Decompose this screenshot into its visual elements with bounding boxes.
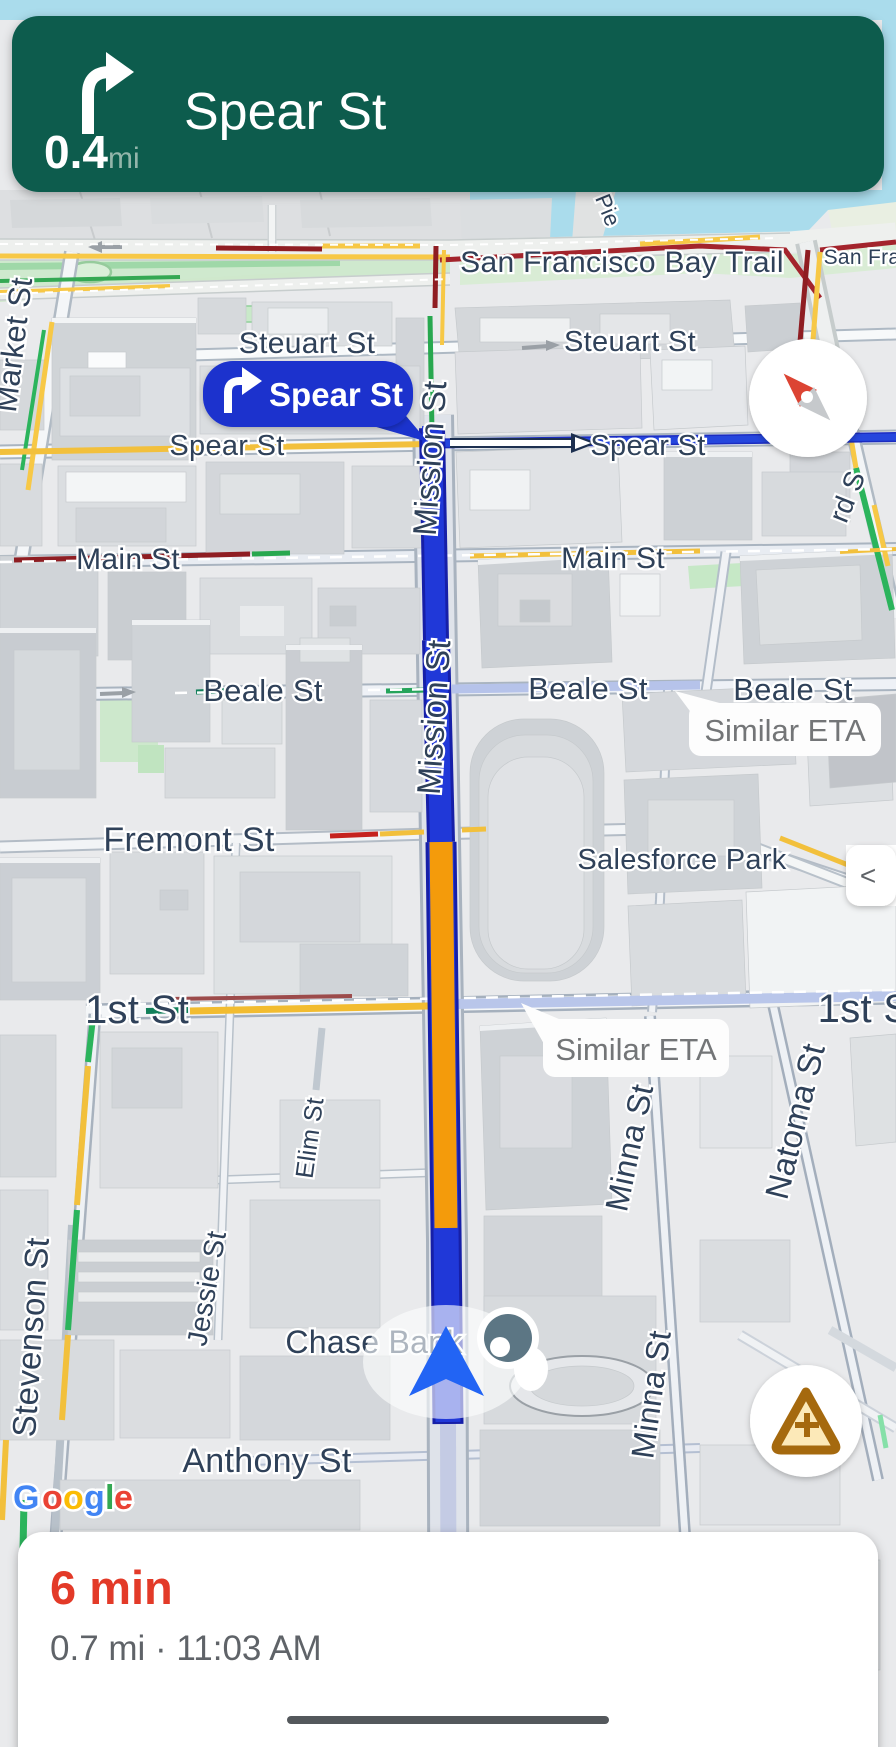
svg-text:Spear St: Spear St [269, 376, 403, 413]
svg-text:Spear St: Spear St [169, 430, 284, 462]
svg-text:Fremont St: Fremont St [103, 821, 274, 859]
svg-text:o: o [42, 1479, 63, 1517]
svg-text:e: e [114, 1479, 133, 1517]
svg-text:Similar ETA: Similar ETA [704, 713, 866, 748]
svg-text:Similar ETA: Similar ETA [555, 1032, 717, 1067]
svg-text:Steuart St: Steuart St [239, 327, 376, 360]
svg-text:San Fran: San Fran [824, 246, 896, 269]
svg-text:Beale St: Beale St [733, 672, 853, 707]
svg-text:1st S: 1st S [818, 987, 896, 1031]
svg-text:Main St: Main St [561, 542, 665, 575]
svg-text:Spear St: Spear St [590, 430, 705, 462]
svg-text:G: G [13, 1479, 39, 1517]
svg-text:Anthony St: Anthony St [182, 1442, 352, 1480]
svg-text:Beale St: Beale St [528, 671, 648, 706]
svg-text:Steuart St: Steuart St [564, 326, 696, 358]
svg-text:Salesforce Park: Salesforce Park [577, 844, 786, 876]
svg-text:<: < [860, 860, 876, 891]
svg-text:0.7 mi · 11:03 AM: 0.7 mi · 11:03 AM [50, 1629, 322, 1668]
svg-text:Main St: Main St [76, 543, 180, 576]
svg-text:g: g [84, 1479, 105, 1517]
svg-text:6 min: 6 min [50, 1561, 173, 1614]
svg-text:San Francisco Bay Trail: San Francisco Bay Trail [460, 246, 784, 279]
svg-text:Beale St: Beale St [203, 673, 323, 708]
svg-text:1st St: 1st St [85, 988, 189, 1032]
svg-text:o: o [63, 1479, 84, 1517]
svg-text:Spear St: Spear St [184, 83, 387, 141]
